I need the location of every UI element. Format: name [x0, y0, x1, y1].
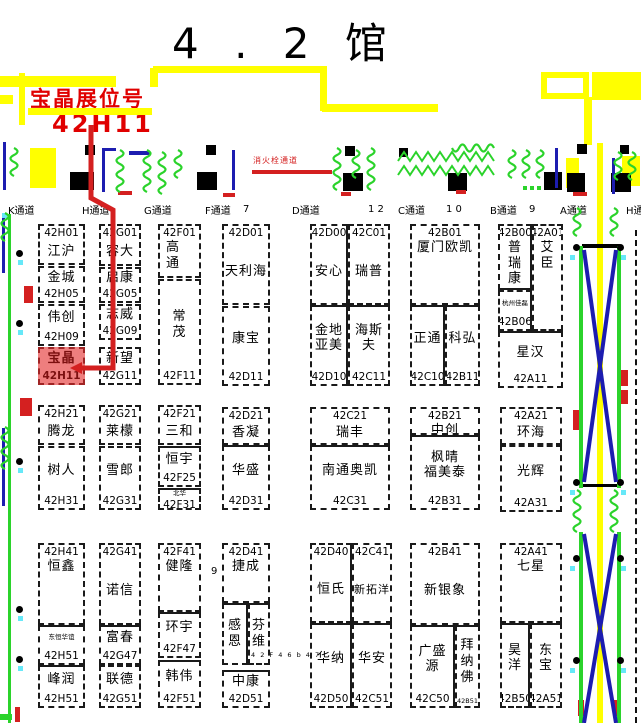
booth-number: 42C21 — [333, 410, 367, 422]
booth-name: 科弘 — [448, 331, 476, 347]
booth-42H51: 东恒华谊42H51 — [38, 625, 85, 665]
booth-42G09: 志威42G09 — [99, 304, 141, 340]
booth-name: 艾 臣 — [540, 240, 554, 271]
booth-42F47: 环宇42F47 — [158, 612, 201, 658]
booth-name: 韩伟 — [165, 669, 193, 685]
pillar-square — [70, 172, 94, 190]
pillar-square — [620, 145, 629, 154]
deco-red-mark — [24, 286, 33, 303]
booth-42G11: 新望42G11 — [99, 347, 141, 385]
booth-number: 42D00 — [312, 227, 347, 239]
deco-green-line — [523, 186, 527, 190]
booth-42H01: 42H01江沪 — [38, 224, 85, 265]
hedge-zigzag-icon — [398, 166, 494, 175]
booth-number: 42B31 — [428, 495, 462, 507]
booth-42B41: 42B41新银象 — [410, 543, 480, 625]
deco-blue-line — [102, 148, 105, 192]
aisle-label-C通道: C通道 — [398, 202, 425, 217]
deco-blue-line — [2, 215, 5, 273]
aisle-label-A通道: A通道 — [560, 202, 587, 217]
booth-number: 42D01 — [229, 227, 264, 239]
booth-name: 正通 — [413, 331, 441, 347]
deco-green-line — [8, 214, 11, 723]
booth-42G01: 42G01容大 — [99, 224, 141, 266]
booth-name: 光辉 — [517, 464, 545, 480]
booth-name: 健隆 — [165, 559, 193, 575]
booth-name: 容大 — [106, 244, 134, 260]
column-dot — [573, 657, 580, 664]
booth-42F01: 42F01高 通 — [158, 224, 201, 278]
deco-yellow-band — [153, 66, 325, 73]
booth-name: 感 恩 — [228, 618, 242, 649]
booth-name: 东恒华谊 — [49, 634, 75, 642]
booth-number: 42F31 — [163, 499, 196, 510]
deco-yellow-band — [592, 72, 641, 100]
plant-squiggle-icon — [537, 150, 544, 178]
booth-number: 42D41 — [229, 546, 264, 558]
booth-number: 42H41 — [44, 546, 79, 558]
booth-42F31: 北华42F31 — [158, 488, 201, 510]
booth-number: 42D31 — [229, 495, 264, 507]
booth-number: 42A01 — [532, 227, 563, 239]
booth-name: 安心 — [315, 264, 343, 280]
deco-blue-line — [612, 158, 615, 194]
booth-number: 42A31 — [514, 497, 548, 509]
booth-number: 42F01 — [163, 227, 196, 239]
deco-green-line — [537, 186, 541, 190]
booth-number: 42D10 — [312, 371, 347, 383]
cyan-marker — [621, 566, 626, 571]
column-dot — [617, 244, 624, 251]
booth-name: 捷成 — [232, 559, 260, 575]
booth-name: 北华 — [173, 490, 186, 498]
booth-42A21: 42A21环海 — [500, 407, 562, 445]
deco-blue-line — [232, 150, 235, 190]
booth-number: 42F25 — [163, 472, 196, 484]
booth-name: 新银象 — [424, 583, 466, 599]
booth-42D10: 金地 亚美42D10 — [310, 305, 348, 386]
booth-42B06: 杭州佳磊42B06 — [498, 290, 532, 331]
booth-42D21: 42D21香凝 — [222, 407, 270, 445]
booth-42G47: 富春42G47 — [99, 625, 141, 665]
plant-squiggle-icon — [175, 150, 182, 178]
booth-感恩: 感 恩 — [222, 603, 248, 665]
booth-42B51: 拜 纳 佛42B51 — [455, 625, 480, 708]
booth-number: 42F51 — [163, 693, 196, 705]
cyan-marker — [570, 490, 575, 495]
deco-red-mark — [20, 398, 32, 416]
booth-number: 42G41 — [103, 546, 138, 558]
cyan-marker — [621, 490, 626, 495]
booth-number: 42B50 — [500, 693, 530, 705]
booth-name: 峰润 — [47, 672, 75, 688]
deco-blue-line — [2, 428, 5, 506]
deco-yellow-band — [584, 97, 592, 145]
booth-number: 42A51 — [530, 693, 562, 705]
pillar-square — [197, 172, 217, 190]
deco-red-mark — [573, 192, 587, 196]
dimension-label: 4 2 F 4 6 b 4 7 — [251, 651, 321, 659]
aisle-label-F通道: F通道 — [205, 202, 231, 217]
plant-squiggle-icon — [452, 145, 494, 152]
booth-name: 联德 — [106, 672, 134, 688]
booth-name: 志威 — [106, 307, 134, 323]
booth-42D51: 中康42D51 — [222, 670, 270, 708]
booth-name: 中创 — [431, 423, 459, 435]
booth-name: 康宝 — [232, 331, 260, 347]
booth-number: 42G11 — [103, 370, 138, 382]
plant-squiggle-icon — [611, 208, 618, 236]
plant-squiggle-icon — [509, 150, 516, 178]
booth-name: 香凝 — [232, 425, 260, 441]
deco-green-line — [579, 246, 583, 488]
booth-number: 42G51 — [103, 693, 138, 705]
booth-number: 42B00 — [498, 227, 532, 239]
booth-name: 诺信 — [106, 583, 134, 599]
plant-squiggle-icon — [117, 150, 124, 192]
booth-name: 瑞丰 — [336, 425, 364, 441]
booth-number: 42C51 — [355, 693, 389, 705]
deco-red-mark — [252, 170, 332, 174]
booth-name: 雪郎 — [106, 463, 134, 479]
booth-42A01: 42A01艾 臣 — [532, 224, 563, 331]
booth-42A31: 光辉42A31 — [500, 445, 562, 512]
aisle-label-H通道: H通道 — [82, 202, 110, 217]
deco-yellow-band — [322, 104, 438, 112]
cyan-marker — [570, 255, 575, 260]
booth-name: 广盛 源 — [418, 644, 446, 675]
booth-number: 42B41 — [428, 546, 462, 558]
cyan-marker — [18, 330, 23, 335]
deco-yellow-band — [28, 108, 152, 115]
deco-yellow-band — [0, 76, 116, 87]
booth-42F41: 42F41健隆 — [158, 543, 201, 612]
booth-name: 新望 — [106, 351, 134, 367]
booth-42G51: 联德42G51 — [99, 665, 141, 708]
pillar-square — [399, 148, 408, 157]
column-dot — [617, 479, 624, 486]
booth-name: 杭州佳磊 — [502, 300, 528, 308]
dimension-label: 1 2 — [368, 204, 384, 215]
booth-number: 42A41 — [514, 546, 548, 558]
pillar-square — [544, 172, 562, 190]
booth-name: 恒鑫 — [47, 559, 75, 575]
booth-42C41: 42C41新拓洋 — [352, 543, 392, 623]
booth-42H05: 金城42H05 — [38, 266, 85, 303]
booth-name: 中康 — [232, 674, 260, 690]
booth-number: 42F41 — [163, 546, 196, 558]
booth-number: 42F47 — [163, 643, 196, 655]
aisle-label-K通道: K通道 — [8, 202, 35, 217]
booth-42C51: 华安42C51 — [352, 623, 392, 708]
deco-yellow-band — [30, 148, 56, 188]
booth-42C01: 42C01瑞普 — [348, 224, 390, 305]
booth-name: 华安 — [358, 651, 386, 667]
pillar-square — [582, 244, 620, 248]
deco-blue-line — [129, 151, 150, 155]
booth-number: 42C31 — [333, 495, 367, 507]
booth-name: 星汉 — [516, 345, 544, 361]
column-dot — [16, 320, 23, 327]
booth-42B11: 科弘42B11 — [445, 305, 480, 386]
booth-42G05: 启康42G05 — [99, 267, 141, 303]
booth-42G31: 雪郎42G31 — [99, 446, 141, 510]
booth-number: 42D51 — [229, 693, 264, 705]
pillar-square — [577, 144, 587, 154]
booth-number: 42F11 — [163, 370, 196, 382]
booth-name: 环海 — [517, 425, 545, 441]
booth-name: 腾龙 — [47, 424, 75, 440]
booth-name: 枫晴 福美泰 — [424, 450, 466, 481]
column-dot — [573, 555, 580, 562]
booth-number: 42B11 — [446, 371, 480, 383]
booth-number: 42C50 — [415, 693, 449, 705]
deco-yellow-band — [597, 143, 603, 723]
booth-42A11: 星汉42A11 — [498, 331, 563, 388]
booth-name: 金城 — [47, 270, 75, 286]
booth-42H41: 42H41恒鑫 — [38, 543, 85, 625]
aisle-label-D通道: D通道 — [292, 202, 320, 217]
pillar-square — [448, 173, 467, 191]
cyan-marker — [18, 260, 23, 265]
booth-name: 江沪 — [47, 244, 75, 260]
hedge-zigzag-icon — [398, 152, 494, 161]
booth-42A41: 42A41七星 — [500, 543, 562, 623]
booth-name: 常 茂 — [172, 309, 186, 340]
booth-number: 42B21 — [428, 410, 462, 422]
booth-42G21: 42G21莱檬 — [99, 405, 141, 445]
hall-title: 4 . 2 馆 — [172, 10, 398, 71]
deco-yellow-box — [541, 72, 589, 99]
deco-red-mark — [118, 191, 132, 195]
booth-42B31: 枫晴 福美泰42B31 — [410, 435, 480, 510]
booth-number: 42H21 — [44, 408, 79, 420]
booth-number: 42C01 — [352, 227, 386, 239]
booth-name: 恒宇 — [165, 452, 193, 468]
cyan-marker — [18, 468, 23, 473]
pillar-square — [343, 173, 363, 191]
booth-name: 伟创 — [47, 310, 75, 326]
booth-42F11: 常 茂42F11 — [158, 279, 201, 385]
booth-42B21: 42B21中创 — [410, 407, 480, 435]
booth-name: 富春 — [106, 630, 134, 646]
booth-name: 环宇 — [165, 620, 193, 636]
booth-number: 42G05 — [103, 288, 138, 300]
booth-42H09: 伟创42H09 — [38, 304, 85, 346]
cyan-marker — [621, 668, 626, 673]
booth-42B50: 昊 洋42B50 — [500, 623, 530, 708]
booth-42C50: 广盛 源42C50 — [410, 625, 455, 708]
booth-name: 芬 维 — [252, 618, 266, 649]
booth-number: 42G09 — [103, 325, 138, 337]
column-dot — [617, 555, 624, 562]
booth-name: 瑞普 — [355, 264, 383, 280]
booth-number: 42B01 — [428, 227, 462, 239]
pillar-square — [85, 145, 95, 155]
booth-name: 金地 亚美 — [315, 323, 343, 354]
booth-name: 华盛 — [232, 463, 260, 479]
pillar-square — [567, 173, 585, 192]
booth-42H21: 42H21腾龙 — [38, 405, 85, 445]
booth-42C31: 南通奥凯42C31 — [310, 445, 390, 510]
booth-name: 海斯 夫 — [355, 323, 383, 354]
booth-42F51: 韩伟42F51 — [158, 660, 201, 708]
booth-name: 南通奥凯 — [322, 463, 378, 479]
deco-blue-line — [3, 142, 6, 190]
booth-42D01: 42D01天利海 — [222, 224, 270, 305]
booth-number: 42G01 — [103, 227, 138, 239]
booth-name: 昊 洋 — [508, 643, 522, 674]
deco-blue-line — [555, 148, 558, 188]
booth-name: 天利海 — [225, 264, 267, 280]
deco-red-mark — [341, 192, 351, 196]
booth-42B00: 42B00普 瑞 康 — [498, 224, 532, 290]
deco-green-line — [617, 246, 621, 488]
dashed-border — [635, 230, 637, 723]
booth-name: 宝晶 — [47, 351, 75, 367]
booth-42D31: 华盛42D31 — [222, 445, 270, 510]
column-dot — [16, 656, 23, 663]
deco-green-line — [530, 186, 534, 190]
column-dot — [16, 606, 23, 613]
booth-42D41: 42D41捷成 — [222, 543, 270, 603]
cyan-marker — [18, 666, 23, 671]
plant-squiggle-icon — [368, 148, 375, 190]
booth-number: 42D40 — [314, 546, 349, 558]
booth-42H11: 宝晶42H11 — [38, 347, 85, 385]
booth-name: 东 宝 — [539, 643, 553, 674]
plant-squiggle-icon — [334, 148, 341, 190]
cyan-marker — [2, 213, 7, 218]
column-dot — [16, 250, 23, 257]
booth-number: 42C11 — [352, 371, 386, 383]
booth-42A51: 东 宝42A51 — [530, 623, 562, 708]
column-dot — [16, 458, 23, 465]
booth-42C21: 42C21瑞丰 — [310, 407, 390, 445]
plant-squiggle-icon — [611, 490, 618, 532]
plant-squiggle-icon — [574, 490, 581, 532]
booth-42G41: 42G41诺信 — [99, 543, 141, 625]
booth-42D11: 康宝42D11 — [222, 306, 270, 386]
booth-number: 42C10 — [410, 371, 444, 383]
booth-name: 启康 — [106, 270, 134, 286]
booth-number: 42G21 — [103, 408, 138, 420]
booth-42H31: 树人42H31 — [38, 446, 85, 510]
plant-squiggle-icon — [523, 150, 530, 178]
booth-name: 三和 — [165, 424, 193, 440]
booth-42D00: 42D00安心 — [310, 224, 348, 305]
booth-number: 42H01 — [44, 227, 79, 239]
pillar-square — [582, 484, 620, 487]
cyan-marker — [570, 566, 575, 571]
aisle-label-B通道: B通道 — [490, 202, 517, 217]
plant-squiggle-icon — [144, 150, 151, 192]
booth-number: 42B06 — [498, 316, 532, 328]
deco-red-mark — [223, 193, 235, 197]
booth-number: 42H31 — [44, 495, 79, 507]
booth-42F25: 恒宇42F25 — [158, 446, 201, 487]
dimension-label: 1 0 — [446, 204, 462, 215]
aisle-label-G通道: G通道 — [144, 202, 172, 217]
dimension-label: 9 — [211, 566, 217, 577]
booth-name: 莱檬 — [106, 424, 134, 440]
plant-squiggle-icon — [159, 152, 166, 194]
booth-number: 42D50 — [314, 693, 349, 705]
column-dot — [573, 479, 580, 486]
cyan-marker — [18, 616, 23, 621]
booth-number: 42H51 — [44, 693, 79, 705]
booth-number: 42A11 — [514, 373, 548, 385]
cyan-marker — [570, 668, 575, 673]
booth-name: 普 瑞 康 — [508, 240, 522, 287]
column-dot — [573, 244, 580, 251]
column-dot — [617, 657, 624, 664]
booth-42B01: 42B01厦门欧凯 — [410, 224, 480, 305]
booth-name: 拜 纳 佛 — [460, 638, 474, 685]
booth-number: 42F21 — [163, 408, 196, 420]
booth-number: 42D21 — [229, 410, 264, 422]
booth-42C11: 海斯 夫42C11 — [348, 305, 390, 386]
booth-number: 42A21 — [514, 410, 548, 422]
booth-name: 恒氏 — [317, 582, 345, 598]
plant-squiggle-icon — [11, 148, 18, 176]
booth-number: 42H09 — [44, 331, 79, 343]
booth-number: 42C41 — [355, 546, 389, 558]
booth-42C10: 正通42C10 — [410, 305, 445, 386]
booth-number: 42G31 — [103, 495, 138, 507]
deco-green-line — [579, 532, 583, 723]
deco-yellow-band — [19, 73, 25, 125]
deco-red-mark — [456, 190, 466, 194]
aisle-label-H通: H通 — [626, 202, 641, 217]
floor-plan: 4 . 2 馆 宝晶展位号 42H11 消火栓通道 42H01江沪金城42H05… — [0, 0, 641, 723]
booth-name: 新拓洋 — [354, 583, 390, 596]
deco-red-mark — [15, 707, 20, 722]
booth-name: 七星 — [517, 559, 545, 575]
booth-name: 树人 — [47, 463, 75, 479]
booth-number: 42G47 — [103, 650, 138, 662]
booth-42D50: 华纳42D50 — [310, 623, 352, 708]
pillar-square — [206, 145, 216, 155]
dimension-label: 7 — [243, 204, 249, 215]
deco-blue-line — [104, 148, 116, 151]
dimension-label: 9 — [529, 204, 535, 215]
booth-number: 42H05 — [44, 288, 79, 300]
booth-number: 42D11 — [229, 371, 264, 383]
booth-42D40: 42D40恒氏 — [310, 543, 352, 623]
booth-number: 42H11 — [42, 370, 80, 382]
booth-number: 42H51 — [44, 650, 79, 662]
fire-hydrant-label: 消火栓通道 — [253, 155, 298, 166]
cyan-marker — [621, 255, 626, 260]
booth-name: 高 通 — [166, 240, 180, 271]
booth-name: 厦门欧凯 — [417, 240, 473, 256]
deco-green-line — [0, 714, 12, 720]
booth-number: 42B51 — [457, 698, 478, 705]
deco-yellow-band — [0, 95, 13, 104]
booth-42F21: 42F21三和 — [158, 405, 201, 445]
pillar-square — [345, 146, 355, 156]
booth-name: 华纳 — [317, 651, 345, 667]
booth-42H51: 峰润42H51 — [38, 665, 85, 708]
